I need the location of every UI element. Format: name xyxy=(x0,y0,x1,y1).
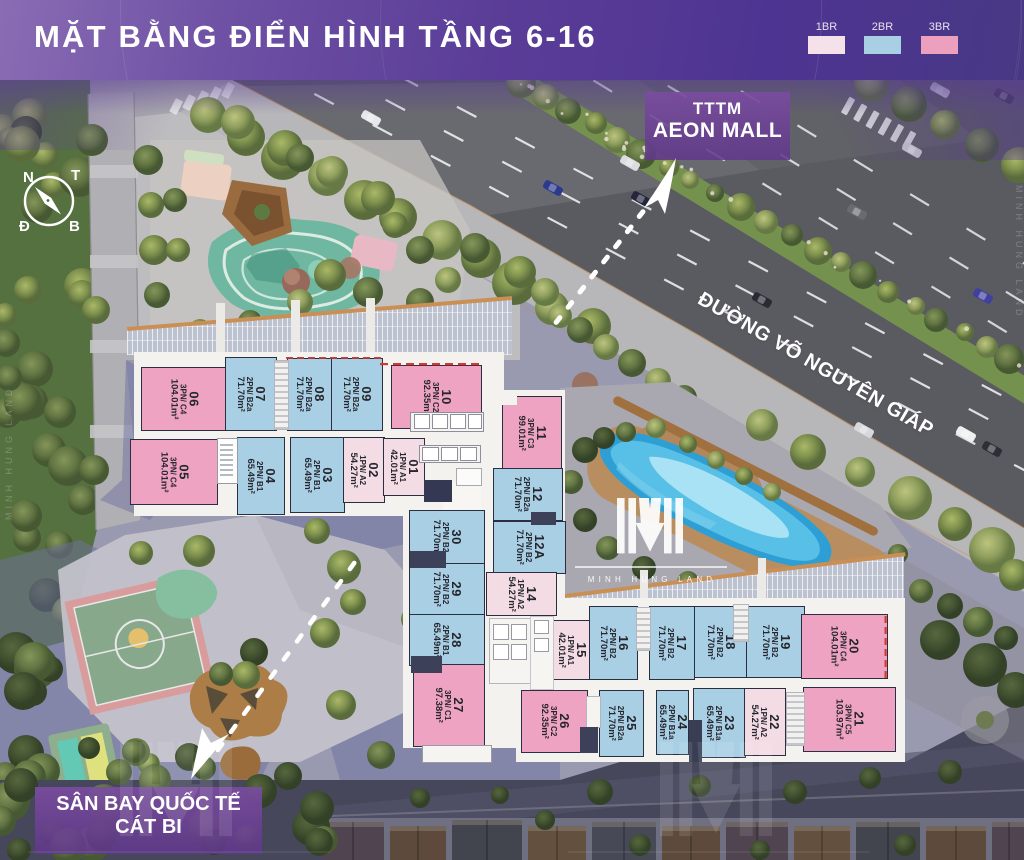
svg-text:MINH HUNG LAND: MINH HUNG LAND xyxy=(4,385,14,520)
svg-text:MINH HUNG LAND: MINH HUNG LAND xyxy=(1014,185,1024,320)
svg-text:MINH HUNG LAND: MINH HUNG LAND xyxy=(588,575,717,584)
